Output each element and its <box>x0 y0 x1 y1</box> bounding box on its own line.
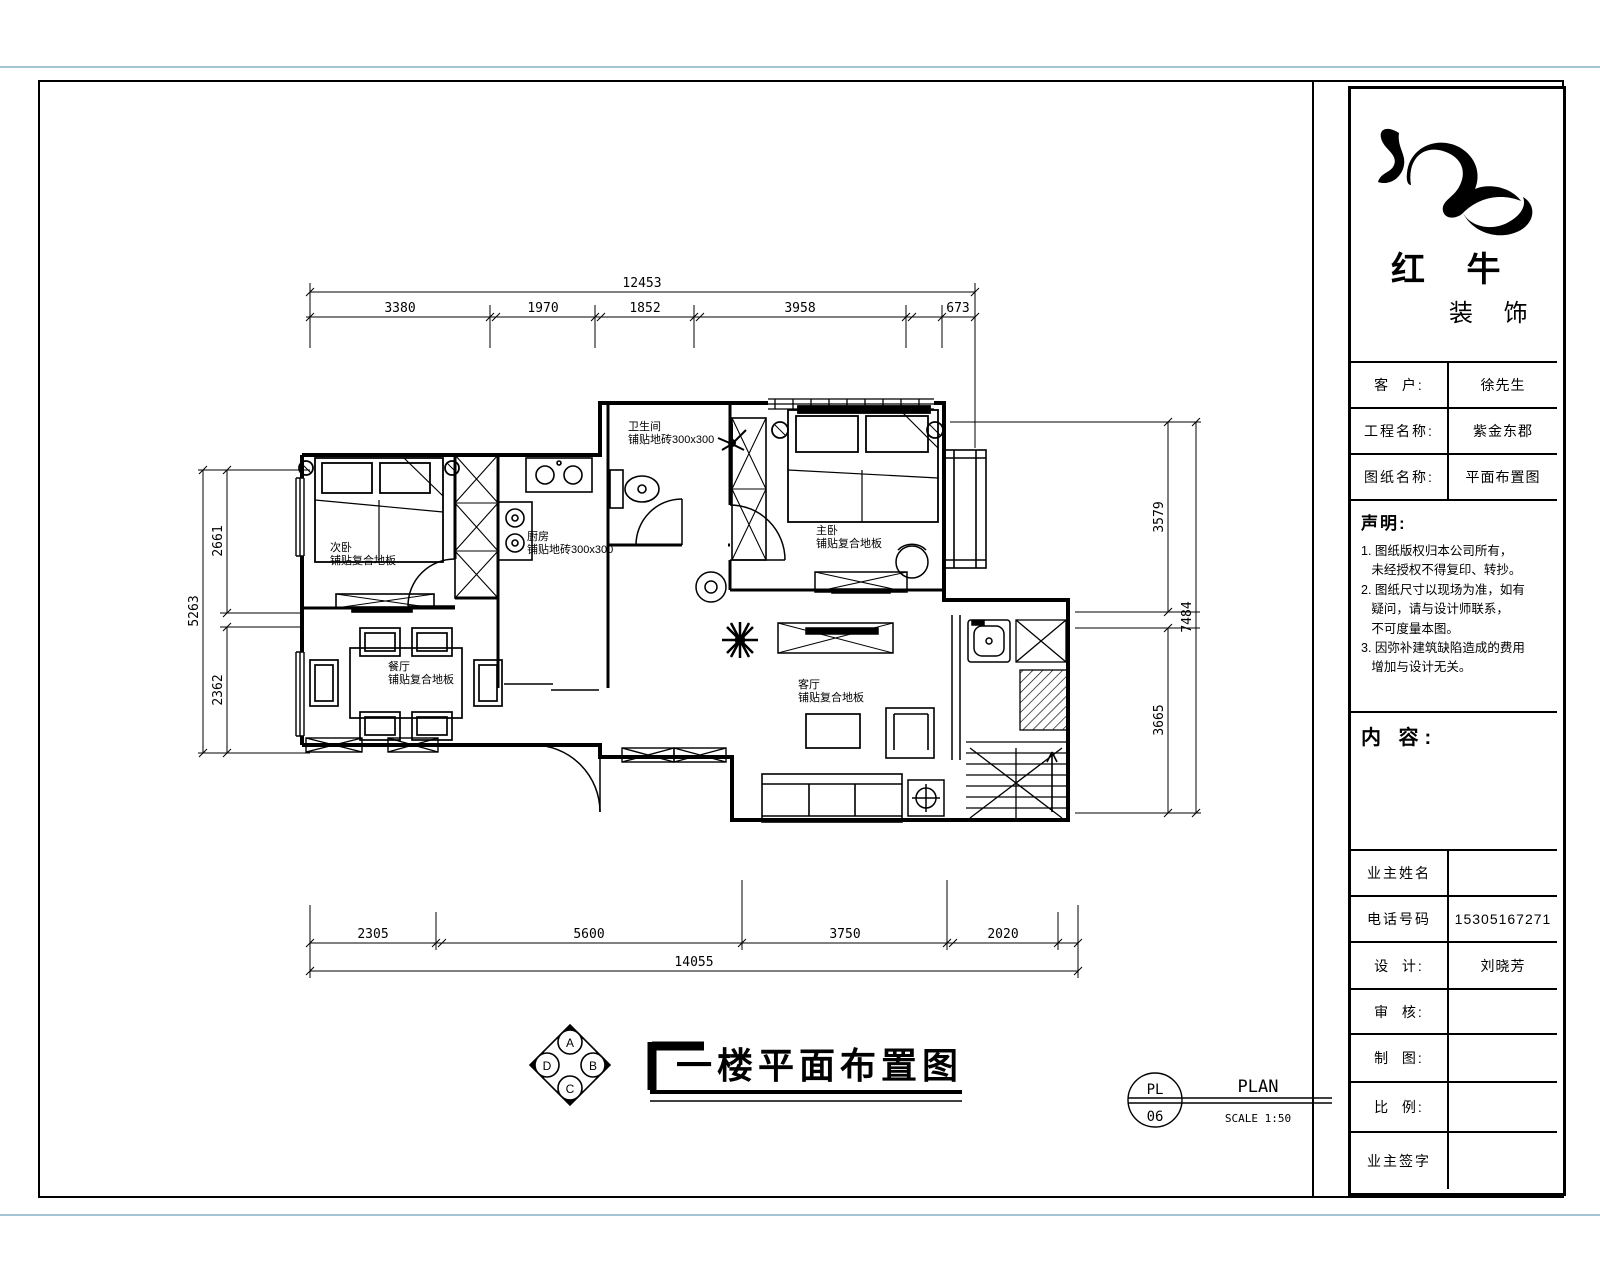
plan-title: 一楼平面布置图 <box>676 1045 963 1086</box>
bed-secondary <box>299 458 459 562</box>
svg-text:3579: 3579 <box>1152 501 1167 532</box>
owner-sign-value <box>1449 1133 1557 1189</box>
owner-name-label: 业主姓名 <box>1351 851 1449 895</box>
logo-swoosh-left <box>1378 129 1404 183</box>
titleblock-row-project: 工程名称: 紫金东郡 <box>1351 407 1557 453</box>
side-table-lamp <box>908 780 944 816</box>
bed-master <box>772 406 943 522</box>
content-section: 内 容: <box>1351 711 1557 849</box>
plan-ref-code-bottom: 06 <box>1147 1109 1164 1125</box>
svg-text:5263: 5263 <box>187 595 202 626</box>
scale-label: 比 例: <box>1351 1083 1449 1131</box>
plan-ref-name: PLAN <box>1238 1077 1279 1097</box>
compass-b: B <box>589 1059 597 1073</box>
wardrobe-secondary <box>455 455 498 598</box>
svg-text:7484: 7484 <box>1180 601 1195 632</box>
company-logo: 红 牛 装 饰 <box>1351 89 1557 361</box>
plan-ref-scale: SCALE 1:50 <box>1225 1112 1291 1125</box>
designer-value: 刘晓芳 <box>1449 943 1557 988</box>
washer <box>968 620 1010 662</box>
svg-text:673: 673 <box>946 301 969 316</box>
drafter-value <box>1449 1035 1557 1081</box>
svg-text:2362: 2362 <box>211 674 226 705</box>
titleblock-row-designer: 设 计: 刘晓芳 <box>1351 941 1557 988</box>
content-label: 内 容: <box>1361 721 1549 750</box>
owner-sign-label: 业主签字 <box>1351 1133 1449 1189</box>
compass: A B C D <box>530 1025 610 1105</box>
svg-text:5600: 5600 <box>573 927 604 942</box>
logo-text-line2: 装 饰 <box>1449 300 1540 327</box>
secondary-bedroom-door <box>408 559 455 606</box>
phone-value: 15305167271 <box>1449 897 1557 941</box>
stair-partition-wall <box>952 615 960 760</box>
room-label-dining: 餐厅 <box>388 659 410 673</box>
coffee-table <box>806 714 860 748</box>
svg-text:铺贴复合地板: 铺贴复合地板 <box>816 536 882 550</box>
svg-text:铺贴复合地板: 铺贴复合地板 <box>388 672 454 686</box>
titleblock-row-customer: 客 户: 徐先生 <box>1351 361 1557 407</box>
stairs <box>966 620 1068 818</box>
project-label: 工程名称: <box>1351 409 1449 453</box>
exterior-walls <box>302 403 1068 820</box>
titleblock-row-reviewer: 审 核: <box>1351 988 1557 1033</box>
svg-text:2020: 2020 <box>987 927 1018 942</box>
tv-cabinet <box>778 623 893 653</box>
svg-text:12453: 12453 <box>622 276 661 291</box>
svg-text:铺贴地砖300x300: 铺贴地砖300x300 <box>628 432 714 446</box>
corridor-basin <box>696 572 726 602</box>
svg-text:14055: 14055 <box>674 955 713 970</box>
master-bedroom-door <box>730 505 785 560</box>
room-label-master-bedroom: 主卧 <box>816 524 838 537</box>
svg-text:铺贴复合地板: 铺贴复合地板 <box>330 553 396 567</box>
svg-text:3380: 3380 <box>384 301 415 316</box>
title-block: 红 牛 装 饰 客 户: 徐先生 工程名称: 紫金东郡 图纸名称: 平面布置图 … <box>1348 86 1566 1196</box>
room-label-living: 客厅 <box>798 677 820 691</box>
titleblock-row-drafter: 制 图: <box>1351 1033 1557 1081</box>
reviewer-value <box>1449 990 1557 1033</box>
logo-swoosh-main <box>1407 143 1521 218</box>
titleblock-row-phone: 电话号码 15305167271 <box>1351 895 1557 941</box>
bay-window <box>944 450 986 568</box>
scale-value <box>1449 1083 1557 1131</box>
bathroom-toilet <box>610 470 659 508</box>
reviewer-label: 审 核: <box>1351 990 1449 1033</box>
room-label-kitchen: 厨房 <box>527 530 549 543</box>
room-label-secondary-bedroom: 次卧 <box>330 540 352 554</box>
designer-label: 设 计: <box>1351 943 1449 988</box>
room-label-bathroom: 卫生间 <box>628 419 661 433</box>
customer-value: 徐先生 <box>1449 363 1557 407</box>
bathroom-door <box>636 499 682 545</box>
titleblock-row-scale: 比 例: <box>1351 1081 1557 1131</box>
kitchen-sliding-door <box>504 684 599 690</box>
dimension-right: 3579 3665 7484 <box>950 418 1201 817</box>
titleblock-row-drawing-name: 图纸名称: 平面布置图 <box>1351 453 1557 499</box>
phone-label: 电话号码 <box>1351 897 1449 941</box>
customer-label: 客 户: <box>1351 363 1449 407</box>
svg-text:2305: 2305 <box>357 927 388 942</box>
statement-section: 声明: 1. 图纸版权归本公司所有， 未经授权不得复印、转抄。 2. 图纸尺寸以… <box>1351 499 1557 711</box>
compass-c: C <box>566 1082 575 1096</box>
drawing-name-label: 图纸名称: <box>1351 455 1449 499</box>
plan-ref: PL 06 PLAN SCALE 1:50 <box>1128 1073 1332 1127</box>
svg-text:3665: 3665 <box>1152 704 1167 735</box>
compass-a: A <box>566 1036 574 1050</box>
drawing-name-value: 平面布置图 <box>1449 455 1557 499</box>
svg-text:1852: 1852 <box>629 301 660 316</box>
svg-text:3750: 3750 <box>829 927 860 942</box>
titleblock-row-owner-name: 业主姓名 <box>1351 849 1557 895</box>
svg-text:3958: 3958 <box>784 301 815 316</box>
owner-name-value <box>1449 851 1557 895</box>
kitchen-sink <box>526 458 592 492</box>
svg-text:2661: 2661 <box>211 525 226 556</box>
logo-text-line1: 红 牛 <box>1391 251 1516 289</box>
plan-title-block: 一楼平面布置图 <box>650 1042 963 1101</box>
plan-ref-code-top: PL <box>1147 1082 1164 1098</box>
project-value: 紫金东郡 <box>1449 409 1557 453</box>
compass-d: D <box>543 1059 552 1073</box>
titleblock-row-owner-sign: 业主签字 <box>1351 1131 1557 1189</box>
dimension-bottom: 2305 5600 3750 2020 14055 <box>306 880 1082 978</box>
svg-text:1970: 1970 <box>527 301 558 316</box>
window-left-dining <box>296 652 304 736</box>
drafter-label: 制 图: <box>1351 1035 1449 1081</box>
statement-title: 声明: <box>1361 509 1549 534</box>
dimension-left: 2661 2362 5263 <box>187 466 310 757</box>
svg-text:铺贴地砖300x300: 铺贴地砖300x300 <box>527 542 613 556</box>
svg-text:铺贴复合地板: 铺贴复合地板 <box>798 690 864 704</box>
armchair <box>886 708 934 758</box>
entry-door <box>533 745 600 812</box>
plant-living <box>722 622 758 658</box>
sofa <box>762 774 902 822</box>
window-left-bedroom <box>296 478 304 556</box>
